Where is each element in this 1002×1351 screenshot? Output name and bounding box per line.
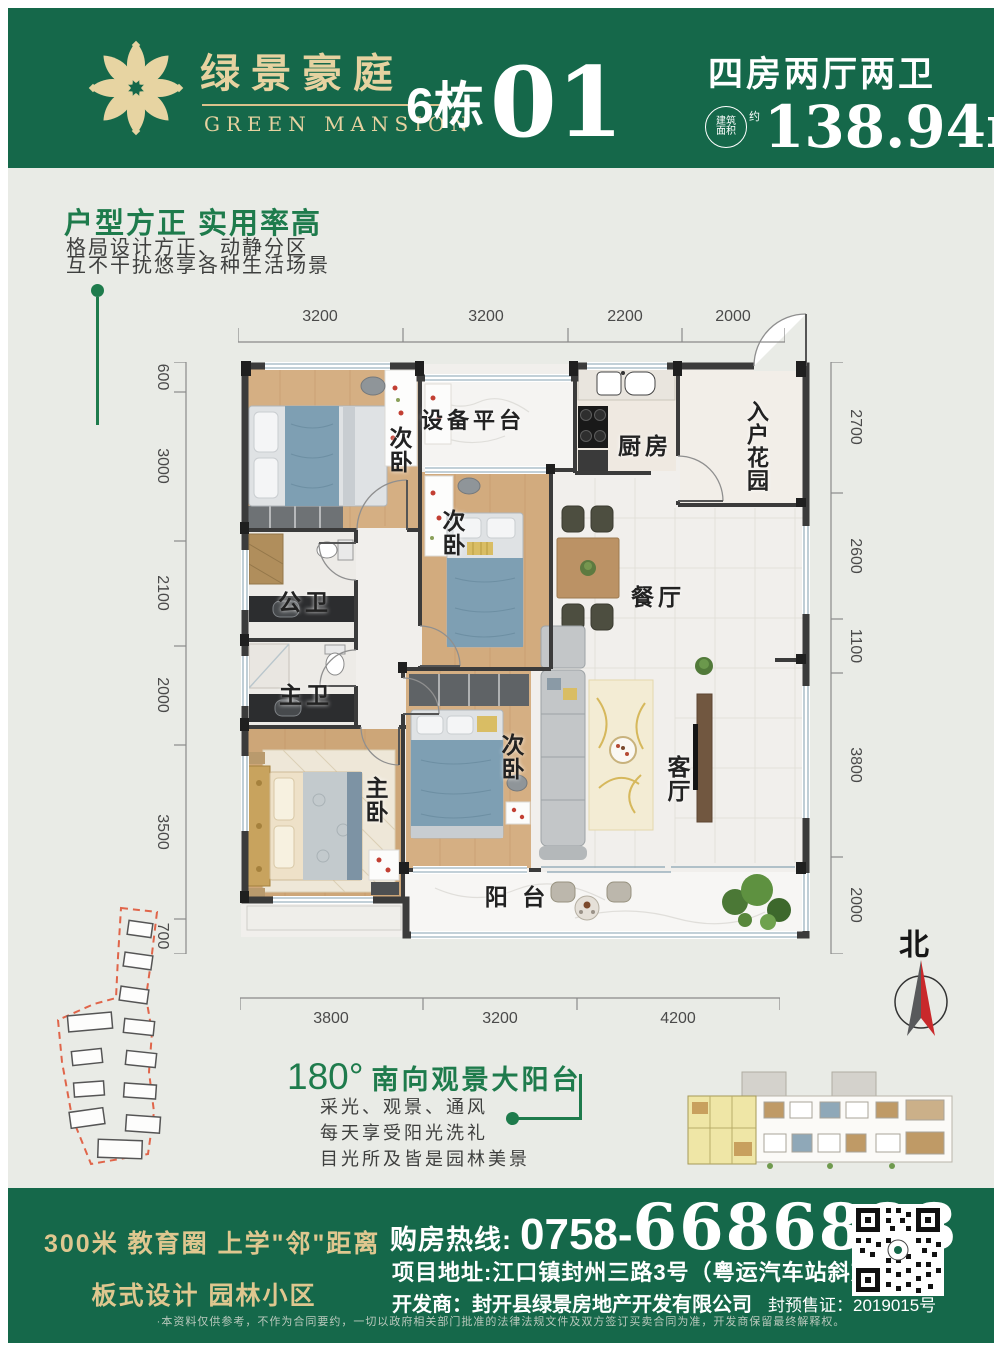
room-label-kitchen: 厨房 <box>618 427 672 461</box>
dim-left-1: 600 <box>153 345 171 409</box>
dim-right-3: 1100 <box>846 614 864 678</box>
room-label-entry-garden: 入户花园 <box>740 400 772 492</box>
intro-connector-dot <box>91 284 104 297</box>
dim-bottom-2: 3200 <box>465 1010 535 1028</box>
dims-top: 3200 3200 2200 2000 <box>238 306 785 350</box>
room-label-dining: 餐厅 <box>631 578 685 612</box>
room-label-bath-public: 公卫 <box>278 583 332 617</box>
room-label-bedroom-south: 次卧 <box>494 733 528 781</box>
callout-degree: 180° <box>287 1056 364 1098</box>
site-plan <box>36 902 214 1180</box>
room-label-bedroom-top: 次卧 <box>382 426 416 474</box>
key-plan-unit-highlight <box>688 1096 756 1164</box>
dim-top-2: 3200 <box>451 308 521 326</box>
dim-bottom-3: 4200 <box>643 1010 713 1028</box>
hotline-prefix: 0758- <box>520 1210 633 1260</box>
room-label-bedroom-mid: 次卧 <box>435 509 469 557</box>
bed-master <box>247 750 399 900</box>
slogan-line1: 300米 教育圈 上学"邻"距离 <box>44 1224 364 1260</box>
poster: 绿景豪庭 GREEN MANSION 6栋 01 四房两厅两卫 建筑 面积 约 … <box>0 0 1002 1351</box>
callout-title: 南向观景大阳台 <box>372 1058 582 1097</box>
dim-right-4: 3800 <box>846 733 864 797</box>
unit-title: 6栋 01 <box>406 30 623 148</box>
north-compass-icon <box>878 954 964 1050</box>
building-number: 6栋 <box>406 66 484 138</box>
dim-left-5: 3500 <box>153 800 171 864</box>
room-label-bath-master: 主卫 <box>279 676 333 710</box>
footer-slogans: 300米 教育圈 上学"邻"距离 板式设计 园林小区 <box>44 1224 364 1312</box>
header-band: 绿景豪庭 GREEN MANSION 6栋 01 四房两厅两卫 建筑 面积 约 … <box>8 8 994 168</box>
callout-connector-vline <box>579 1074 582 1120</box>
brand-name-cn: 绿景豪庭 <box>200 41 404 99</box>
balcony-callout-lines: 采光、观景、通风 每天享受阳光洗礼 目光所及皆是园林美景 <box>320 1094 530 1172</box>
room-label-living: 客厅 <box>660 755 694 803</box>
brand-logo-icon <box>84 34 188 138</box>
dim-top-3: 2200 <box>590 308 660 326</box>
dim-right-2: 2600 <box>846 524 864 588</box>
callout-line3: 目光所及皆是园林美景 <box>320 1146 530 1172</box>
hotline-label: 购房热线: <box>390 1218 512 1257</box>
dim-right-1: 2700 <box>846 395 864 459</box>
qr-code <box>852 1204 944 1296</box>
dims-left: 600 3000 2100 2000 3500 700 <box>146 362 192 954</box>
dims-bottom: 3800 3200 4200 <box>240 992 780 1038</box>
area-badge-line2: 面积 <box>716 127 736 138</box>
intro-connector-line <box>96 297 99 425</box>
room-label-platform: 设备平台 <box>421 403 525 435</box>
unit-number: 01 <box>490 57 624 148</box>
callout-line1: 采光、观景、通风 <box>320 1094 530 1120</box>
callout-line2: 每天享受阳光洗礼 <box>320 1120 530 1146</box>
area-badge-about: 约 <box>749 108 760 124</box>
dim-left-2: 3000 <box>153 434 171 498</box>
dims-bottom-line <box>240 992 780 1012</box>
project-address: 项目地址:江口镇封州三路3号（粤运汽车站斜对面） <box>392 1255 920 1287</box>
slogan-line2: 板式设计 园林小区 <box>44 1276 364 1312</box>
dim-bottom-1: 3800 <box>296 1010 366 1028</box>
callout-connector-hline <box>512 1117 582 1120</box>
dim-top-4: 2000 <box>698 308 768 326</box>
site-buildings <box>67 920 160 1158</box>
rosette-petals <box>90 42 182 134</box>
area-badge: 建筑 面积 <box>705 106 747 148</box>
dim-right-5: 2000 <box>846 873 864 937</box>
dim-left-3: 2100 <box>153 561 171 625</box>
dim-top-1: 3200 <box>285 308 355 326</box>
room-label-balcony: 阳 台 <box>485 878 549 912</box>
disclaimer: ·本资料仅供参考，不作为合同要约，一切以政府相关部门批准的法律法规文件及双方签订… <box>8 1313 994 1329</box>
room-label-master-bedroom: 主卧 <box>358 776 392 824</box>
area-value: 138.94m <box>764 98 1002 156</box>
layout-type: 四房两厅两卫 <box>708 46 936 97</box>
intro-line2: 互不干扰悠享各种生活场景 <box>66 252 330 280</box>
area-row: 建筑 面积 约 138.94m 2 <box>705 98 1002 156</box>
balcony-callout-title: 180° 南向观景大阳台 <box>287 1056 582 1098</box>
dims-right: 2700 2600 1100 3800 2000 <box>825 362 871 954</box>
key-plan <box>680 1060 964 1178</box>
dim-left-4: 2000 <box>153 663 171 727</box>
